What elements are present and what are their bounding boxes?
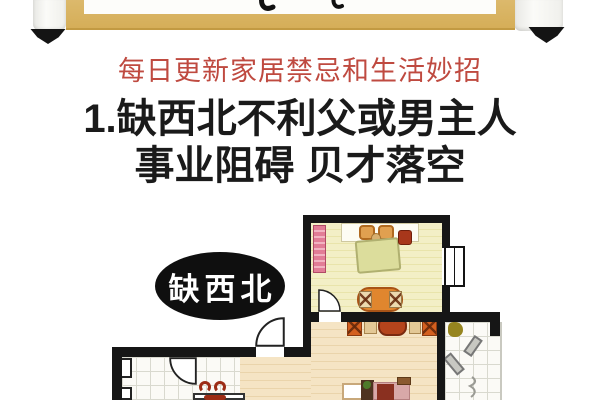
wall-bedroom-right-upper	[442, 215, 450, 248]
kitchen-door	[169, 357, 197, 385]
entry-door-opening	[256, 347, 284, 357]
bedroom-chair	[398, 230, 412, 245]
missing-northwest-badge: 缺西北	[155, 252, 285, 320]
wardrobe	[313, 225, 326, 273]
wall-bedroom-top	[303, 215, 450, 223]
scroll-banner	[0, 0, 600, 46]
entry-door	[255, 317, 285, 347]
scroll-roller-right	[514, 0, 563, 31]
bedroom-door	[318, 289, 341, 312]
wall-bedroom-left	[303, 215, 311, 357]
channel-subtitle: 每日更新家居禁忌和生活妙招	[0, 49, 600, 88]
toilet-sketch	[462, 375, 490, 399]
shelf	[397, 377, 411, 385]
hall-floor	[240, 357, 311, 400]
cooking-pot	[204, 395, 226, 400]
scroll-foot-right-icon	[527, 27, 566, 43]
bathroom-plant-icon	[448, 322, 463, 337]
bed-blanket	[355, 237, 402, 274]
scroll-foot-left-icon	[29, 29, 67, 44]
wall-bedroom-right-lower	[442, 285, 450, 313]
wall-kitchen-left	[112, 347, 122, 400]
article-title-line1: 1.缺西北不利父或男主人	[0, 96, 600, 143]
wall-bathroom-left	[437, 322, 445, 400]
wall-corner-block	[490, 322, 500, 336]
scroll-roller-left	[33, 0, 66, 31]
side-table-left	[359, 291, 372, 308]
scroll-paper	[84, 0, 496, 14]
tv-screen	[377, 384, 394, 400]
stove-burner-left	[199, 381, 211, 393]
bedroom-door-opening	[319, 312, 341, 322]
article-title-line2: 事业阻碍 贝才落空	[0, 143, 600, 190]
stove-burner-right	[214, 381, 226, 393]
scroll-gold-frame	[66, 0, 515, 30]
side-table-right	[389, 291, 402, 308]
floorplan-image: 缺西北	[105, 203, 505, 400]
article-title: 1.缺西北不利父或男主人 事业阻碍 贝才落空	[0, 96, 600, 190]
bedroom-window	[444, 246, 465, 287]
calligraphy-stroke-icon	[252, 0, 372, 14]
